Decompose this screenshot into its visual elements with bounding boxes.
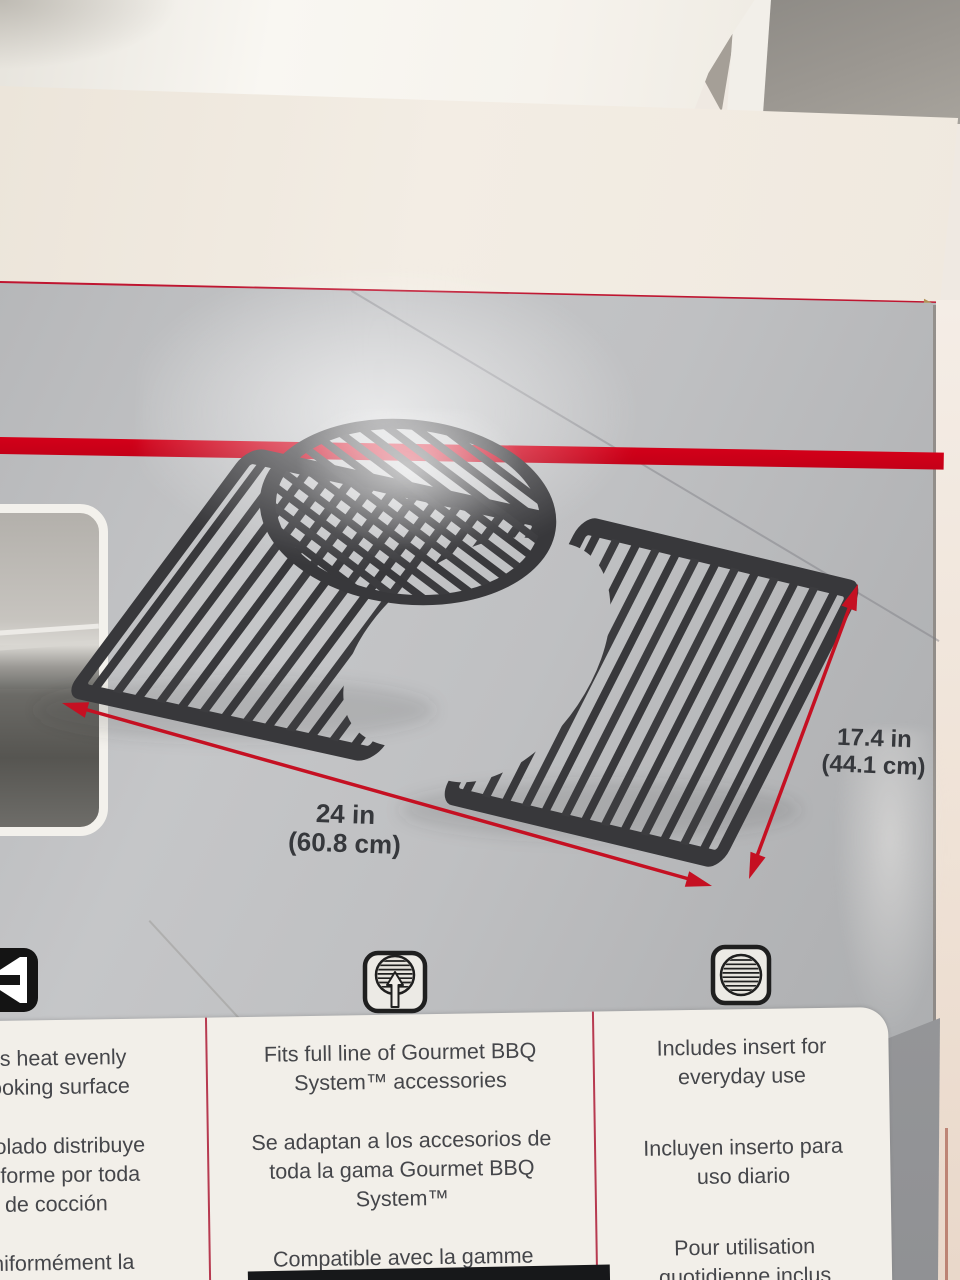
feature-insert-en: Includes insert for everyday use: [594, 1031, 889, 1094]
feature-compat-en: Fits full line of Gourmet BBQ System™ ac…: [207, 1036, 593, 1100]
feature-insert-es: Incluyen inserto para uso diario: [596, 1131, 891, 1194]
feature-line: o colado distribuye: [0, 1130, 193, 1163]
feature-column-heat: tes heat evenly cooking surface o colado…: [0, 1018, 197, 1280]
product-box-photo: 24 in (60.8 cm) 17.4 in (44.1 cm): [0, 0, 960, 1280]
feature-line: uniforme por toda: [0, 1159, 194, 1192]
product-illustration: [0, 380, 960, 940]
feature-insert-fr: Pour utilisation quotidienne inclus: [597, 1231, 892, 1280]
feature-column-insert: Includes insert for everyday use Incluye…: [592, 1007, 894, 1280]
left-grate-half: [75, 455, 545, 755]
depth-dimension-label: 17.4 in (44.1 cm): [809, 724, 939, 782]
feature-line: cooking surface: [0, 1071, 192, 1104]
feature-line: System™ accessories: [208, 1065, 593, 1100]
feature-line: uso diario: [596, 1160, 890, 1194]
feature-line: Includes insert for: [594, 1031, 888, 1065]
feature-column-compatibility: Fits full line of Gourmet BBQ System™ ac…: [205, 1012, 598, 1280]
feature-line: tes heat evenly: [0, 1042, 192, 1075]
fixture-shadow: [0, 0, 180, 70]
box-right-edge-red-line: [945, 1128, 948, 1280]
feature-compat-es: Se adaptan a los accesorios de toda la g…: [209, 1124, 595, 1217]
feature-line: Pour utilisation: [597, 1231, 891, 1265]
box-top-surface: [0, 84, 960, 310]
width-dimension-label: 24 in (60.8 cm): [249, 797, 441, 862]
feature-heat-en: tes heat evenly cooking surface: [0, 1042, 192, 1104]
feature-line: quotidienne inclus: [598, 1260, 892, 1280]
swap-arrows-icon: [0, 948, 38, 1012]
feature-line: de cocción: [0, 1188, 194, 1221]
insert-fit-icon: [362, 950, 428, 1014]
feature-line: Incluyen inserto para: [596, 1131, 890, 1165]
feature-heat-es: o colado distribuye uniforme por toda de…: [0, 1130, 194, 1221]
grate-insert-icon: [710, 944, 772, 1006]
feature-line: System™: [210, 1182, 595, 1217]
feature-line: Fits full line of Gourmet BBQ: [207, 1036, 592, 1071]
feature-line: everyday use: [595, 1060, 889, 1094]
feature-line: uniformément la: [0, 1247, 195, 1280]
features-panel: tes heat evenly cooking surface o colado…: [0, 1007, 894, 1280]
depth-metric: (44.1 cm): [809, 751, 938, 782]
feature-heat-fr: uniformément la l'ensemble de la: [0, 1247, 195, 1280]
feature-line: Se adaptan a los accesorios de: [209, 1124, 594, 1159]
